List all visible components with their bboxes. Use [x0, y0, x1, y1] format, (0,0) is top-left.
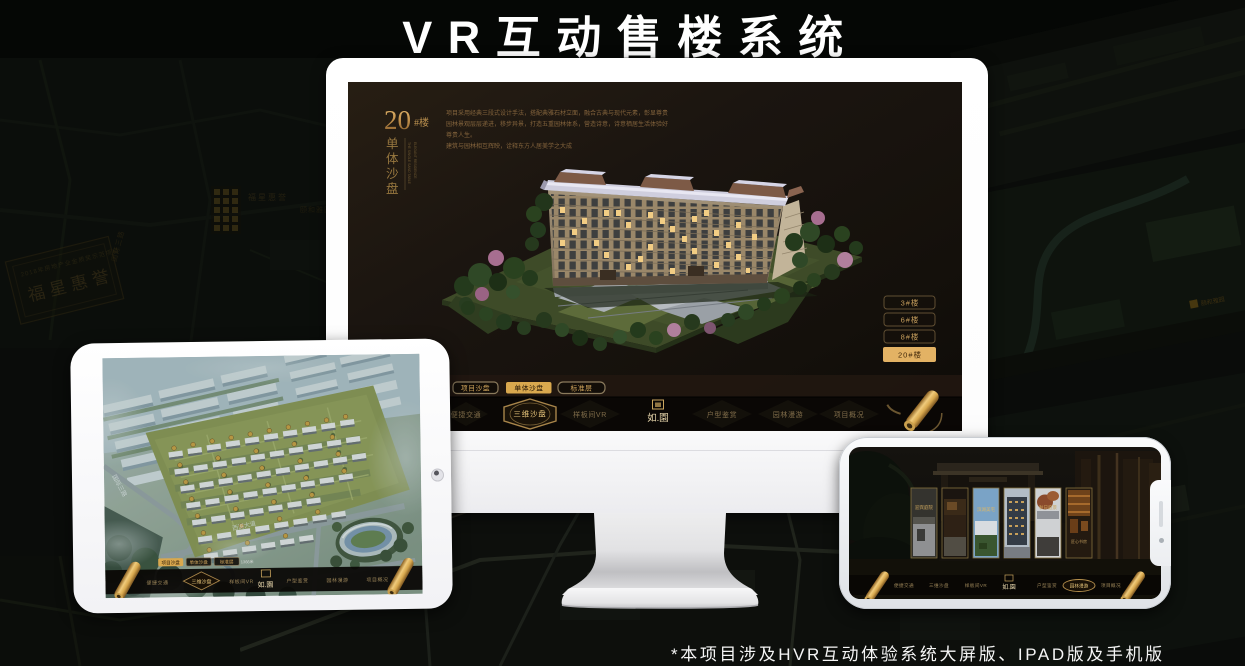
svg-text:标准层: 标准层: [571, 384, 593, 393]
svg-text:项目采用经典三段式设计手法，搭配典雅石材立面，融合古典与现代: 项目采用经典三段式设计手法，搭配典雅石材立面，融合古典与现代元素，彰显尊贵: [446, 109, 668, 117]
svg-text:如.園: 如.園: [1002, 583, 1016, 591]
svg-text:3#楼: 3#楼: [901, 298, 920, 308]
svg-text:福星惠誉: 福星惠誉: [248, 192, 288, 202]
svg-text:园林漫游: 园林漫游: [326, 577, 348, 584]
svg-text:建筑与园林相互辉映，诠释东方人居美学之大成: 建筑与园林相互辉映，诠释东方人居美学之大成: [446, 142, 572, 150]
svg-text:项目概况: 项目概况: [834, 410, 864, 419]
svg-text:尊贵人生。: 尊贵人生。: [446, 131, 476, 139]
svg-text:园林漫游: 园林漫游: [1070, 583, 1089, 590]
svg-text:户型鉴赏: 户型鉴赏: [707, 410, 737, 419]
svg-text:迎宾庭院: 迎宾庭院: [915, 504, 933, 511]
svg-text:单体沙盘: 单体沙盘: [514, 384, 543, 393]
svg-text:项目概况: 项目概况: [1101, 582, 1121, 589]
svg-text:盘: 盘: [386, 181, 399, 196]
svg-text:如.園: 如.園: [258, 580, 274, 589]
svg-text:便捷交通: 便捷交通: [894, 582, 914, 589]
svg-text:三维沙盘: 三维沙盘: [191, 578, 211, 585]
svg-text:沙: 沙: [386, 167, 399, 181]
svg-text:6#楼: 6#楼: [901, 315, 920, 325]
svg-text:#楼: #楼: [414, 116, 429, 129]
svg-text:户型鉴赏: 户型鉴赏: [286, 577, 308, 584]
svg-text:样板间VR: 样板间VR: [965, 582, 987, 589]
svg-text:20#楼: 20#楼: [898, 350, 922, 360]
svg-text:1366米: 1366米: [241, 558, 254, 564]
svg-text:三维沙盘: 三维沙盘: [513, 409, 546, 419]
svg-text:体: 体: [386, 152, 399, 166]
svg-text:滨湖美宅: 滨湖美宅: [977, 506, 995, 513]
svg-text:8#楼: 8#楼: [901, 332, 920, 342]
svg-text:样板间VR: 样板间VR: [229, 578, 254, 585]
svg-text:秋日庭景: 秋日庭景: [1039, 504, 1057, 511]
svg-text:便捷交通: 便捷交通: [146, 579, 168, 586]
svg-text:便捷交通: 便捷交通: [451, 410, 481, 419]
svg-text:户型鉴赏: 户型鉴赏: [1037, 582, 1057, 589]
svg-text:如.園: 如.園: [647, 412, 668, 424]
svg-text:单: 单: [386, 137, 399, 151]
svg-text:园林景观层层递进，移步异景，打造五重园林体系，营造诗意，诗意: 园林景观层层递进，移步异景，打造五重园林体系，营造诗意，诗意栖居生活体验好: [446, 120, 668, 128]
svg-text:园林漫游: 园林漫游: [773, 410, 803, 419]
svg-text:匠心书房: 匠心书房: [1071, 538, 1087, 544]
svg-text:三维沙盘: 三维沙盘: [929, 582, 949, 589]
svg-text:项目沙盘: 项目沙盘: [461, 384, 490, 393]
svg-text:样板间VR: 样板间VR: [573, 410, 607, 419]
svg-text:20: 20: [384, 105, 411, 135]
svg-text:项目概况: 项目概况: [366, 576, 388, 583]
svg-text:ELEGANT RESIDENCE: ELEGANT RESIDENCE: [413, 142, 417, 179]
svg-text:THE SINGLE SAND TABLE: THE SINGLE SAND TABLE: [407, 142, 411, 185]
